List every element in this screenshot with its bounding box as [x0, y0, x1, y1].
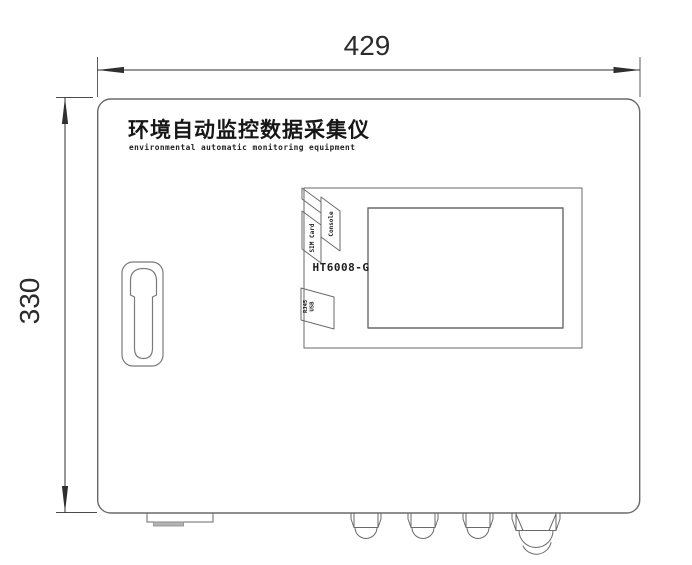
gland-facet	[549, 514, 556, 531]
height-dimension-label: 330	[14, 278, 45, 325]
console-port: Console	[321, 197, 340, 251]
cable-gland-1	[351, 514, 381, 539]
arrow-left-icon	[98, 67, 125, 73]
sim-card-label: SIM Card	[309, 223, 316, 252]
arrow-up-icon	[62, 98, 68, 125]
bracket-step	[154, 522, 184, 526]
gland-nut	[463, 514, 493, 528]
width-dimension-label: 429	[344, 30, 391, 61]
gland-nut	[351, 514, 381, 528]
arrow-right-icon	[614, 67, 641, 73]
port-tab-top	[302, 188, 321, 213]
technical-drawing-canvas: 429 330 环境自动监控数据采集仪 environmental automa…	[0, 0, 692, 565]
height-dimension: 330	[14, 98, 97, 513]
gland-facet	[516, 514, 523, 531]
device-subtitle: environmental automatic monitoring equip…	[129, 143, 355, 152]
usb-port-label: USB	[310, 301, 316, 312]
network-port: RJ45 USB	[301, 288, 334, 329]
sim-card-port: SIM Card	[302, 211, 321, 263]
handle-recess	[122, 262, 163, 366]
gland-dome	[355, 528, 377, 539]
display-screen	[368, 208, 563, 328]
width-dimension: 429	[98, 30, 641, 97]
rj45-port-label: RJ45	[303, 300, 309, 313]
gland-dome	[412, 528, 434, 539]
handle-grip	[131, 269, 157, 359]
cable-gland-2	[408, 514, 438, 539]
bracket-outline	[147, 514, 213, 523]
gland-nut	[408, 514, 438, 528]
arrow-down-icon	[62, 486, 68, 513]
cable-gland-large	[512, 514, 560, 555]
gland-dome	[519, 531, 553, 548]
gland-dome	[467, 528, 489, 539]
console-port-label: Console	[328, 211, 335, 237]
device-title: 环境自动监控数据采集仪	[128, 118, 370, 142]
cable-gland-3	[463, 514, 493, 539]
door-handle	[122, 262, 163, 366]
mounting-bracket	[147, 514, 213, 527]
